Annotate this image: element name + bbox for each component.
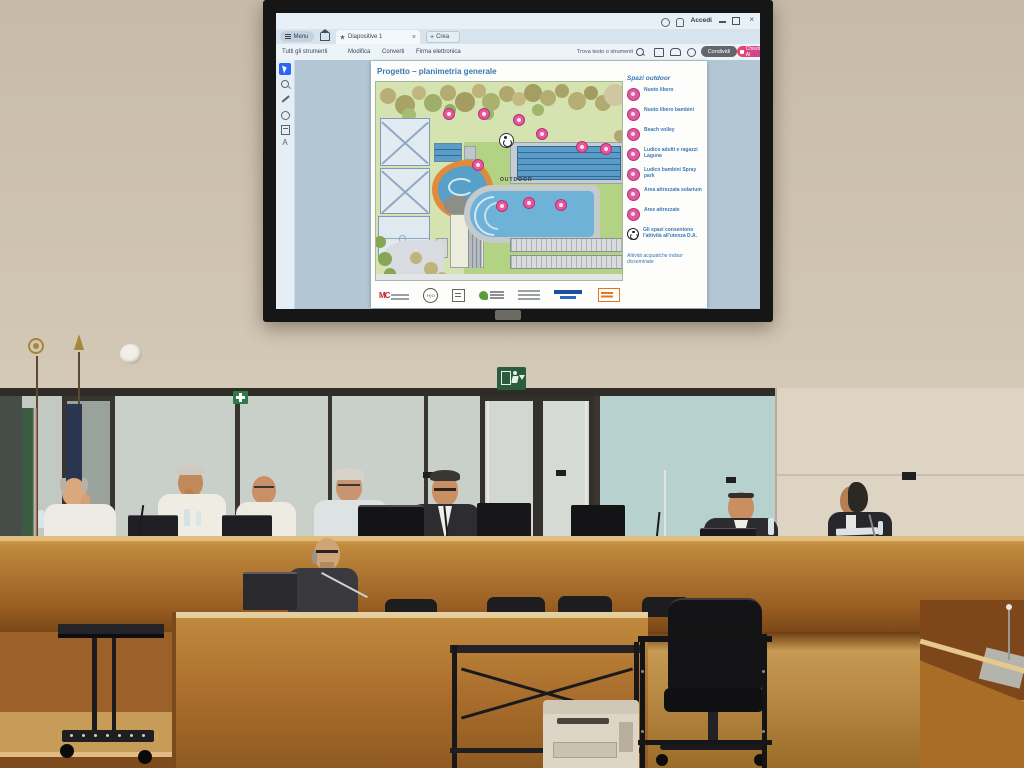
map-marker — [513, 114, 525, 126]
legend-marker-icon — [627, 108, 640, 121]
exit-door-glyph — [501, 371, 511, 385]
map-marker — [443, 108, 455, 120]
legend-marker-icon — [627, 208, 640, 221]
sport-court — [380, 168, 430, 214]
menu-item-convert[interactable]: Converti — [382, 49, 404, 55]
tree — [380, 88, 396, 104]
menu-item-esign[interactable]: Firma elettronica — [416, 49, 461, 55]
maximize-button[interactable] — [732, 17, 740, 25]
menu-item-all-tools[interactable]: Tutti gli strumenti — [282, 49, 327, 55]
partner-logo — [479, 291, 504, 300]
map-marker — [536, 128, 548, 140]
legend-title: Spazi outdoor — [627, 75, 703, 82]
tree — [540, 90, 556, 106]
projection-screen: Accedi × Menu Diapositive 1 × — [263, 0, 773, 322]
hamburger-icon — [285, 36, 291, 37]
perforated-base — [62, 730, 154, 742]
partner-logo — [452, 289, 465, 302]
shape-tool-icon[interactable] — [279, 108, 291, 120]
hair — [848, 482, 868, 512]
council-chamber-photo: Accedi × Menu Diapositive 1 × — [0, 0, 1024, 768]
hair — [176, 465, 205, 475]
close-button[interactable]: × — [749, 15, 754, 24]
map-legend: Spazi outdoor Nuoto libero Nuoto libero … — [627, 75, 703, 281]
road — [376, 274, 623, 281]
menu-item-edit[interactable]: Modifica — [348, 49, 370, 55]
legend-item: Area attrezzata solarium — [644, 188, 702, 194]
laptop — [243, 572, 297, 610]
legend-marker-icon — [627, 168, 640, 181]
person-secretary — [286, 536, 360, 620]
ai-label: Chiedi all'Assistente AI — [746, 46, 760, 58]
water-bottle — [878, 521, 883, 535]
hair — [334, 468, 364, 480]
notifications-icon[interactable] — [676, 18, 684, 27]
cloud-icon[interactable] — [670, 48, 681, 56]
legend-marker-icon — [627, 128, 640, 141]
pdf-page: Progetto – planimetria generale — [371, 61, 707, 308]
map-marker — [576, 141, 588, 153]
more-tools-icon[interactable] — [687, 48, 696, 57]
ai-sparkle-icon — [740, 50, 744, 54]
tool-rail: A — [276, 60, 295, 309]
legend-marker-icon — [627, 188, 640, 201]
map-marker — [496, 200, 508, 212]
legend-note: Attività acquatiche indoor disseminate — [627, 254, 689, 265]
tree — [614, 130, 623, 142]
cable — [664, 470, 666, 536]
create-tab[interactable]: + Crea — [426, 31, 460, 43]
exit-person-glyph — [513, 371, 517, 375]
plus-icon: + — [430, 34, 434, 41]
microphone — [1008, 608, 1010, 660]
glass-mark — [726, 477, 736, 483]
export-icon[interactable] — [654, 48, 664, 57]
accessibility-marker — [499, 133, 514, 148]
partner-logo — [598, 288, 620, 302]
water-bottle — [184, 509, 190, 526]
ai-assistant-button[interactable]: Chiedi all'Assistente AI — [737, 46, 760, 57]
legend-item: Aree attrezzate — [644, 208, 680, 214]
right-desk — [920, 600, 1024, 768]
glasses — [316, 550, 338, 553]
star-icon[interactable] — [340, 35, 345, 40]
sport-court — [380, 118, 430, 166]
toolbar: Tutti gli strumenti Modifica Converti Fi… — [276, 44, 760, 61]
search-label: Trova testo o strumenti — [577, 49, 633, 55]
legend-item: Nuoto libero — [644, 88, 673, 94]
tree — [424, 94, 442, 112]
screen-mount — [495, 310, 521, 320]
tree — [455, 92, 475, 112]
tree — [532, 104, 544, 116]
glasses — [338, 484, 360, 486]
pole-finial-spear — [74, 334, 84, 350]
zoom-tool-icon[interactable] — [279, 78, 291, 90]
partner-logo: H₂O — [423, 288, 438, 303]
small-pool — [434, 143, 462, 162]
tab-bar: Menu Diapositive 1 × + Crea — [276, 29, 760, 44]
printer — [543, 700, 639, 768]
tree — [555, 84, 569, 98]
tree — [604, 84, 623, 106]
flag-italy — [22, 408, 37, 538]
glasses — [254, 486, 274, 488]
map-marker — [523, 197, 535, 209]
signin-button[interactable]: Accedi — [691, 17, 712, 24]
sunglasses — [728, 493, 754, 498]
document-tab[interactable]: Diapositive 1 × — [336, 30, 420, 44]
tree — [378, 252, 392, 266]
map-marker — [478, 108, 490, 120]
exit-sign — [497, 367, 526, 390]
tab-close-icon[interactable]: × — [412, 34, 416, 41]
wall-alarm-device — [120, 344, 142, 364]
wheel — [60, 744, 74, 758]
tree — [412, 86, 426, 100]
wheelchair-icon — [627, 228, 639, 240]
solarium-deck — [510, 255, 623, 269]
menu-label: Menu — [293, 34, 308, 40]
text-tool-icon[interactable]: A — [279, 138, 291, 150]
legend-item: Ludico bambini Spray park — [644, 168, 703, 179]
pool-deck-small — [464, 146, 476, 160]
first-aid-sign — [233, 391, 248, 404]
frame-table — [638, 634, 772, 768]
legend-item: Nuoto libero bambini — [644, 108, 694, 114]
history-icon[interactable] — [661, 18, 670, 27]
map-marker — [472, 159, 484, 171]
water-bottle — [196, 511, 201, 526]
exit-arrow-icon — [519, 375, 525, 380]
window-titlebar: Accedi × — [276, 13, 760, 29]
share-button[interactable]: Condividi — [701, 46, 737, 57]
map-marker — [555, 199, 567, 211]
rolling-table — [52, 620, 172, 768]
glass-mark — [556, 470, 566, 476]
map-marker — [600, 143, 612, 155]
share-label: Condividi — [708, 49, 731, 55]
glasses — [434, 488, 456, 491]
select-tool-icon[interactable] — [279, 63, 291, 75]
wheel — [138, 750, 152, 764]
document-canvas[interactable]: Progetto – planimetria generale — [295, 60, 760, 309]
water-bottle — [768, 518, 774, 535]
legend-marker-icon — [627, 88, 640, 101]
wall-socket — [902, 472, 916, 480]
search-box[interactable]: Trova testo o strumenti — [558, 46, 644, 57]
pen-tool-icon[interactable] — [279, 93, 291, 105]
document-tab-label: Diapositive 1 — [348, 34, 382, 40]
tree — [440, 85, 456, 101]
partner-logo — [518, 294, 540, 296]
home-icon[interactable] — [320, 33, 330, 41]
hair — [60, 478, 66, 492]
acrobat-window: Accedi × Menu Diapositive 1 × — [276, 13, 760, 309]
outdoor-label: OUTDOOR — [500, 177, 533, 183]
hair — [430, 470, 460, 481]
menu-button[interactable]: Menu — [280, 31, 314, 42]
hair — [82, 478, 88, 492]
logo-strip: MC H₂O — [379, 285, 701, 305]
water-bottle — [38, 510, 44, 528]
tree — [410, 252, 422, 264]
minimize-button[interactable] — [719, 21, 726, 23]
partner-logo — [554, 289, 584, 301]
legend-item: Ludico adulti e ragazzi Laguna — [644, 148, 703, 159]
solarium-deck — [510, 238, 623, 252]
legend-item: Gli spazi consentono l'attività all'uten… — [643, 228, 703, 239]
pole-finial-emblem — [28, 338, 44, 354]
slide-title: Progetto – planimetria generale — [377, 67, 497, 76]
create-tab-label: Crea — [436, 34, 449, 40]
legend-item: Beach volley — [644, 128, 675, 134]
site-plan-map: OUTDOOR — [375, 81, 623, 281]
pages-tool-icon[interactable] — [279, 123, 291, 135]
partner-logo: MC — [379, 291, 409, 300]
corridor-window — [0, 396, 22, 546]
search-icon — [636, 48, 644, 56]
legend-marker-icon — [627, 148, 640, 161]
